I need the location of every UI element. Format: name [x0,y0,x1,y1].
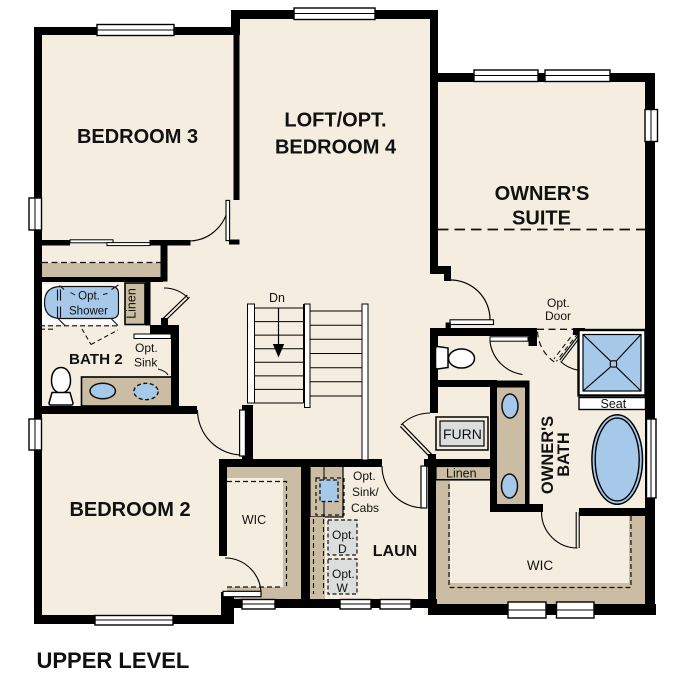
svg-text:WIC: WIC [242,513,266,527]
svg-text:UPPER LEVEL: UPPER LEVEL [37,648,190,673]
svg-text:Door: Door [545,309,571,323]
svg-text:Opt.: Opt. [353,469,376,483]
svg-text:LAUN: LAUN [373,543,417,560]
svg-text:LOFT/OPT.: LOFT/OPT. [284,110,386,132]
svg-text:BEDROOM 2: BEDROOM 2 [69,499,190,521]
svg-text:Opt.: Opt. [135,341,158,355]
svg-text:Opt.: Opt. [332,567,355,581]
svg-text:BEDROOM 4: BEDROOM 4 [275,137,397,159]
svg-text:Dn: Dn [269,291,285,305]
svg-text:BEDROOM 3: BEDROOM 3 [77,126,198,148]
svg-text:Shower: Shower [69,306,108,318]
svg-text:Opt.: Opt. [78,291,100,303]
svg-text:BATH 2: BATH 2 [69,351,123,368]
svg-text:Sink: Sink [134,356,158,370]
svg-text:OWNER'S: OWNER'S [495,183,590,205]
svg-text:Seat: Seat [601,397,627,411]
svg-text:D: D [338,542,347,556]
svg-text:WIC: WIC [527,558,553,573]
svg-text:Opt.: Opt. [547,296,570,310]
svg-text:Sink/: Sink/ [352,485,379,499]
svg-text:W: W [337,581,349,595]
svg-text:Linen: Linen [125,288,139,319]
svg-text:Cabs: Cabs [351,501,379,515]
svg-text:SUITE: SUITE [512,208,571,230]
svg-text:Linen: Linen [446,467,477,481]
svg-text:BATH: BATH [555,432,573,477]
svg-text:Opt.: Opt. [332,528,355,542]
svg-text:FURN: FURN [443,426,482,442]
